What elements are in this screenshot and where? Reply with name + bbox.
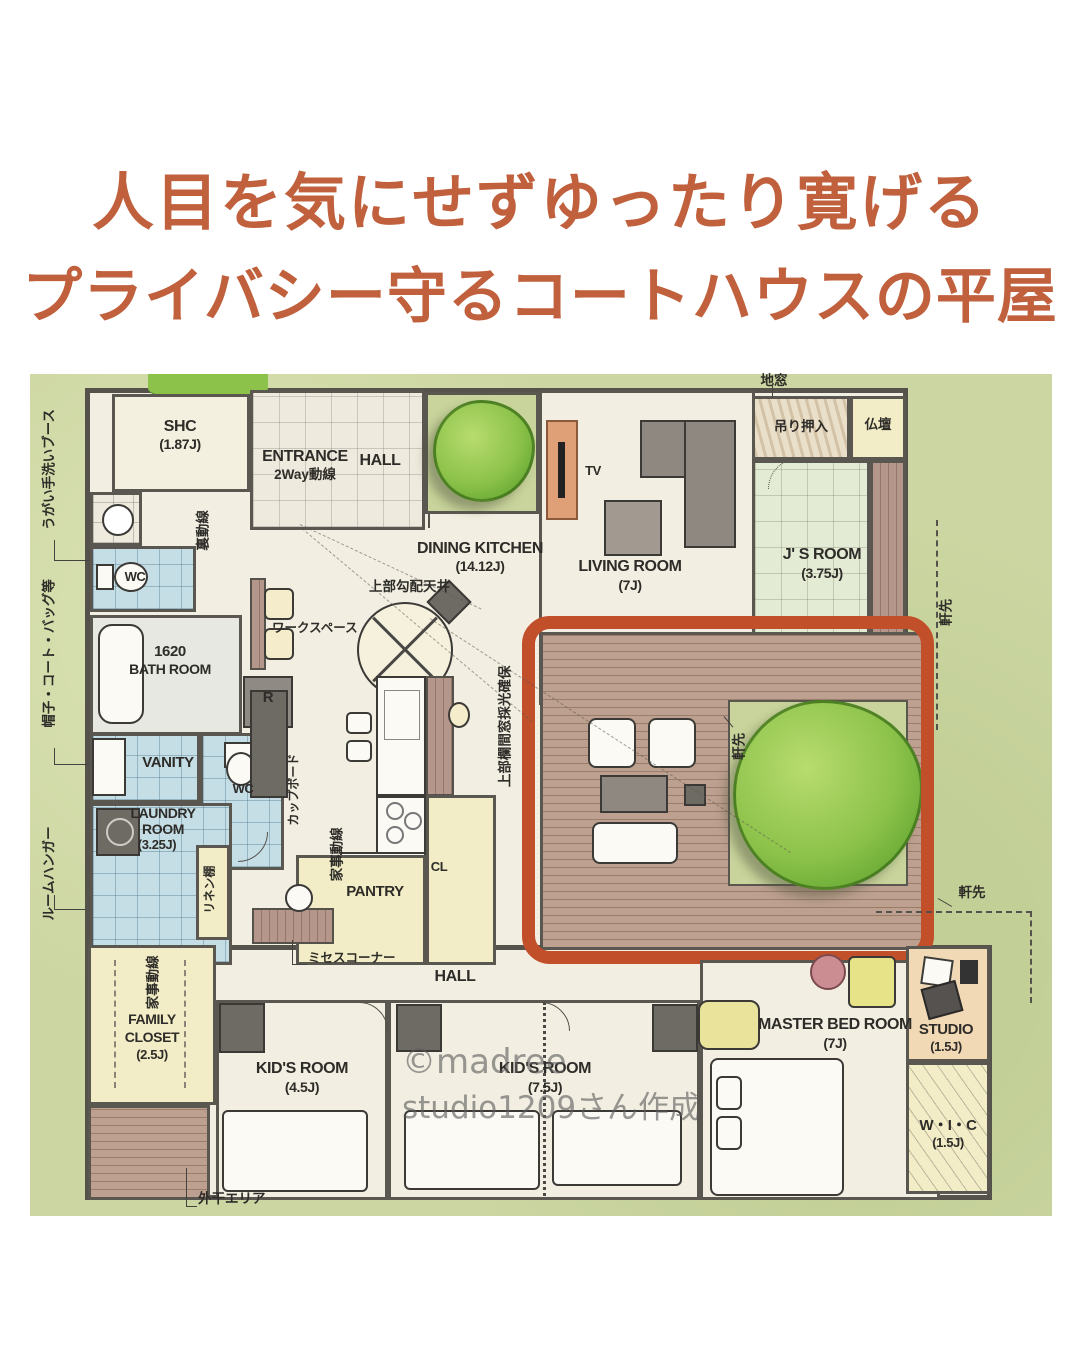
label-master-size: (7J)	[740, 1036, 930, 1051]
label-dining-kitchen: DINING KITCHEN	[405, 540, 555, 558]
courtyard-highlight-box	[522, 616, 934, 964]
leader-hanger	[54, 895, 85, 910]
label-linen: リネン棚	[203, 864, 216, 916]
bar-stool	[448, 702, 470, 728]
leader-misses	[292, 940, 307, 965]
label-js-room: J' S ROOM	[762, 546, 882, 564]
label-family-size: (2.5J)	[100, 1048, 204, 1062]
sofa-side	[684, 420, 736, 548]
label-nokisaki-court: 軒先	[733, 730, 748, 762]
workspace-stool-1	[264, 588, 294, 620]
label-laundry-1: LAUNDRY	[118, 806, 208, 821]
master-pillow-1	[716, 1076, 742, 1110]
watermark-line-1: ©madree	[402, 1042, 567, 1082]
eave-line-south-v	[1030, 911, 1032, 1003]
title-line-1: 人目を気にせずゆったり寛げる	[0, 152, 1080, 242]
kids2-closet-right	[652, 1004, 698, 1052]
label-shc: SHC	[130, 418, 230, 436]
title-line-2: プライバシー守るコートハウスの平屋	[0, 248, 1080, 335]
label-living: LIVING ROOM	[560, 558, 700, 576]
label-entrance-sub: 2Way動線	[245, 468, 365, 483]
label-wc-upper: WC	[120, 570, 150, 584]
label-wic-size: (1.5J)	[908, 1136, 988, 1150]
margin-note-hanger: ルームハンガー	[43, 823, 58, 923]
label-js-room-size: (3.75J)	[762, 566, 882, 581]
dining-chair-1	[346, 712, 372, 734]
kids1-closet	[219, 1003, 265, 1053]
wc-upper-tank	[96, 564, 114, 590]
label-living-size: (7J)	[560, 578, 700, 593]
margin-note-bag: 帽子・コート・バッグ等	[43, 574, 58, 732]
label-cupboard: カップボード	[287, 750, 300, 830]
label-hall-top: HALL	[345, 452, 415, 470]
label-bath: BATH ROOM	[122, 662, 218, 677]
label-pantry: PANTRY	[330, 884, 420, 901]
label-r: R	[243, 690, 293, 707]
label-bath-num: 1620	[130, 644, 210, 661]
master-round-table	[810, 954, 846, 990]
label-kaji-kitchen: 家事動線	[331, 826, 346, 882]
label-laundry-size: (3.25J)	[112, 838, 202, 852]
margin-note-wash: うがい手洗いブース	[43, 404, 58, 534]
label-master: MASTER BED ROOM	[740, 1016, 930, 1034]
kitchen-sink	[384, 690, 420, 740]
label-kaji-fc: 家事動線	[147, 954, 162, 1010]
master-chair	[848, 956, 896, 1008]
label-studio: STUDIO	[908, 1022, 984, 1039]
wash-bowl	[102, 504, 134, 536]
leader-drying	[186, 1168, 197, 1207]
label-dining-kitchen-size: (14.12J)	[405, 559, 555, 574]
label-ranma: 上部欄間窓採光確保	[499, 661, 514, 791]
dining-chair-2	[346, 740, 372, 762]
label-shc-size: (1.87J)	[130, 437, 230, 452]
label-studio-size: (1.5J)	[908, 1040, 984, 1054]
label-misses-corner: ミセスコーナー	[308, 952, 418, 966]
label-laundry-2: ROOM	[118, 822, 208, 837]
leader-bag	[54, 748, 89, 765]
label-nokisaki-se: 軒先	[950, 886, 994, 901]
label-joubu-kouhai: 上部勾配天井	[352, 580, 467, 595]
living-table	[604, 500, 662, 556]
leader-wash	[54, 540, 89, 561]
watermark-line-2: studio1209さん作成	[402, 1082, 700, 1127]
misses-stool	[285, 884, 313, 912]
label-butsudan: 仏壇	[855, 418, 901, 433]
studio-monitor	[960, 960, 978, 984]
misses-desk	[252, 908, 334, 944]
label-tsuri: 吊り押入	[766, 420, 836, 435]
burner-3	[386, 826, 404, 844]
burner-1	[386, 802, 404, 820]
label-workspace: ワークスペース	[272, 622, 352, 636]
label-ura-dousen: 裏動線	[197, 508, 212, 552]
label-family-1: FAMILY	[100, 1012, 204, 1027]
label-kids1-size: (4.5J)	[222, 1080, 382, 1095]
tv-icon	[558, 442, 565, 498]
label-hall-bottom: HALL	[420, 968, 490, 986]
label-tv: TV	[578, 464, 608, 478]
label-wic: W・I・C	[908, 1118, 988, 1135]
master-pillow-2	[716, 1116, 742, 1150]
eave-line-south	[876, 911, 1032, 913]
poster: 人目を気にせずゆったり寛げる プライバシー守るコートハウスの平屋	[0, 0, 1080, 1350]
label-vanity: VANITY	[118, 755, 218, 772]
burner-2	[404, 812, 422, 830]
label-nokisaki-east: 軒先	[940, 596, 955, 628]
label-cl: CL	[424, 860, 454, 874]
label-family-2: CLOSET	[100, 1030, 204, 1045]
label-drying-area: 外干エリア	[198, 1192, 288, 1207]
label-wc-lower: WC	[228, 782, 258, 796]
label-kids1: KID'S ROOM	[222, 1060, 382, 1078]
kitchen-bar	[426, 676, 454, 796]
kids1-bed	[222, 1110, 368, 1192]
label-jimado: 地窓	[748, 374, 800, 389]
room-cl	[426, 795, 496, 965]
